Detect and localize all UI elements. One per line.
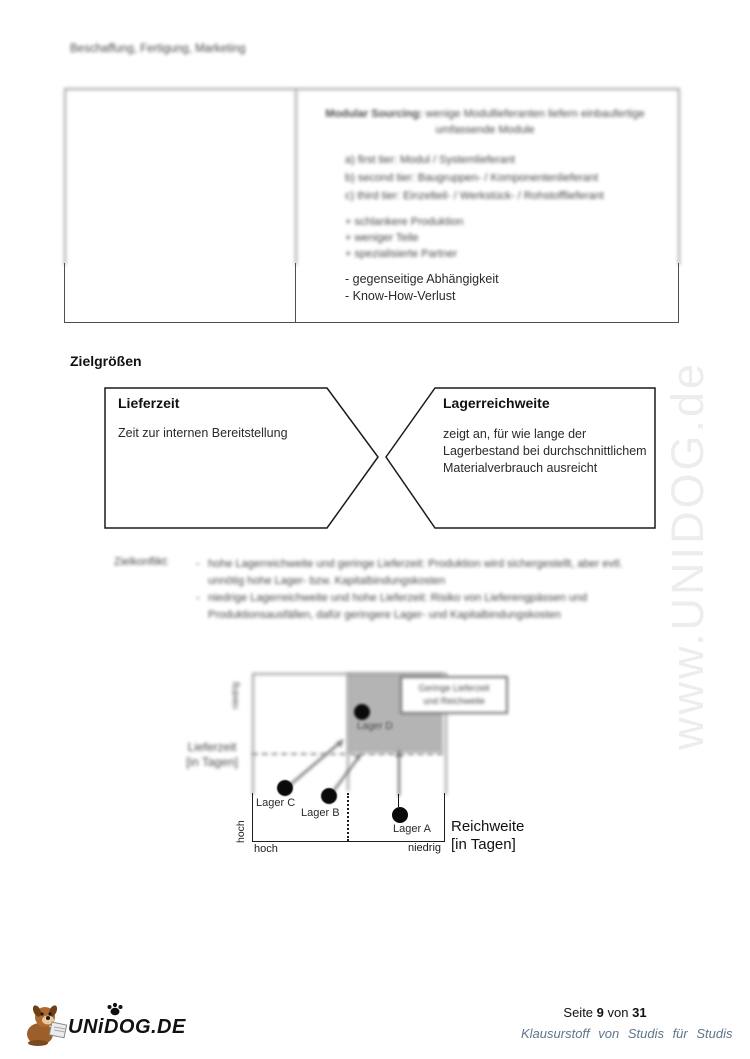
lagerreichweite-box-title: Lagerreichweite [443,395,550,411]
modular-sourcing-def-line2: umfassende Module [435,124,534,136]
table-column-divider [295,90,297,265]
bullet-marker: - [196,590,208,624]
page-total: 31 [632,1005,646,1020]
seite-word: Seite [563,1005,593,1020]
lager-a-arrow-sharp-segment [398,794,399,807]
page-header: Beschaffung, Fertigung, Marketing [70,43,246,55]
von-word: von [608,1005,629,1020]
zielkonflikt-item: - niedrige Lagerreichweite und hohe Lief… [196,590,644,624]
lager-b-point [321,788,337,804]
callout-line2: und Reichweite [402,695,506,708]
x-axis-label-line2: [in Tagen] [451,836,516,853]
page-number: 9 [597,1005,604,1020]
cons-list: - gegenseitige Abhängigkeit - Know-How-V… [345,271,499,304]
zielkonflikt-item: - hohe Lagerreichweite und geringe Liefe… [196,556,644,590]
lager-chart: Geringe Lieferzeit und Reichweite Lager … [180,663,580,863]
lagerreichweite-box-text: zeigt an, für wie lange der Lagerbestand… [443,426,655,477]
watermark: www.UNIDOG.de [662,258,714,750]
y-axis-label: Lieferzeit [in Tagen] [180,740,244,770]
y-axis-label-line1: Lieferzeit [188,740,237,754]
unidog-logo-text: UNiDOG.DE [68,1016,186,1039]
y-axis-top-tick: niedrig [230,675,240,709]
lager-a-label: Lager A [393,823,431,835]
page-number-line: Seite 9 von 31 [545,1005,665,1020]
lager-a-point [392,807,408,823]
callout-line1: Geringe Lieferzeit [402,682,506,695]
tier-item: c) third tier: Einzelteil- / Werkstück- … [345,187,604,205]
zielkonflikt-label: Zielkonflikt: [114,556,169,568]
lager-d-point [354,704,370,720]
con-item: - Know-How-Verlust [345,288,499,305]
lager-c-label: Lager C [256,797,295,809]
zielkonflikt-item-text: niedrige Lagerreichweite und hohe Liefer… [208,590,644,624]
x-axis-right-tick: niedrig [408,842,441,854]
x-axis-left-tick: hoch [254,843,278,855]
modular-sourcing-paragraph: Modular Sourcing: wenige Modullieferante… [300,106,670,138]
y-axis-bottom-tick: hoch [235,813,247,843]
y-axis-label-line2: [in Tagen] [186,755,238,769]
unidog-mascot-icon [24,1004,70,1046]
modular-sourcing-def: wenige Modullieferanten liefern einbaufe… [426,108,645,120]
lieferzeit-box-text: Zeit zur internen Bereitstellung [118,426,318,440]
tier-item: a) first tier: Modul / Systemlieferant [345,151,604,169]
pro-item: + weniger Teile [345,230,463,246]
bullet-marker: - [196,556,208,590]
callout-box: Geringe Lieferzeit und Reichweite [400,676,508,714]
lager-d-label: Lager D [357,721,393,732]
pro-item: + spezialisierte Partner [345,246,463,262]
tier-item: b) second tier: Baugruppen- / Komponente… [345,169,604,187]
tier-list: a) first tier: Modul / Systemlieferant b… [345,151,604,205]
lager-b-label: Lager B [301,807,340,819]
table-column-divider [295,263,296,322]
zielkonflikt-item-text: hohe Lagerreichweite und geringe Lieferz… [208,556,644,590]
modular-sourcing-term: Modular Sourcing: [325,108,422,120]
lager-c-point [277,780,293,796]
section-heading-zielgroessen: Zielgrößen [70,353,142,369]
pros-list: + schlankere Produktion + weniger Teile … [345,214,463,262]
x-axis-label-line1: Reichweite [451,818,524,835]
con-item: - gegenseitige Abhängigkeit [345,271,499,288]
zielkonflikt-list: - hohe Lagerreichweite und geringe Liefe… [196,556,644,624]
paw-print-icon [106,1002,124,1016]
lieferzeit-box-title: Lieferzeit [118,395,179,411]
document-page: www.UNIDOG.de Beschaffung, Fertigung, Ma… [0,0,750,1059]
x-axis-label: Reichweite [in Tagen] [451,818,524,854]
pro-item: + schlankere Produktion [345,214,463,230]
footer-tagline: Klausurstoff von Studis für Studis [521,1026,732,1041]
